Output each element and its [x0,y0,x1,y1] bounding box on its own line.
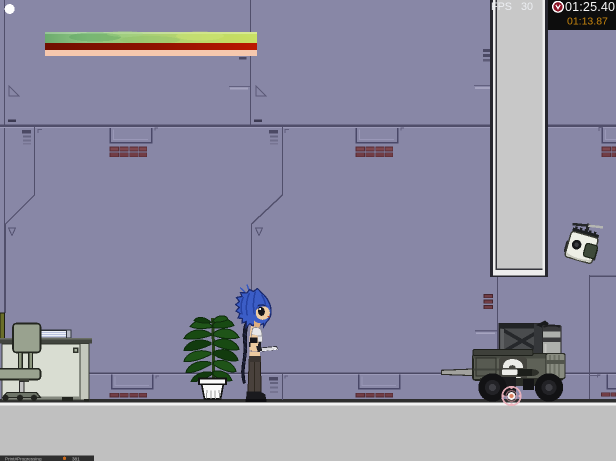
svg-text:381: 381 [72,456,80,461]
svg-text:Print#Progressing: Print#Progressing [5,456,42,461]
svg-text:FPS 30: FPS 30 [491,1,533,13]
svg-text:01:25.40: 01:25.40 [565,0,615,14]
svg-text:01:13.87: 01:13.87 [567,16,608,28]
